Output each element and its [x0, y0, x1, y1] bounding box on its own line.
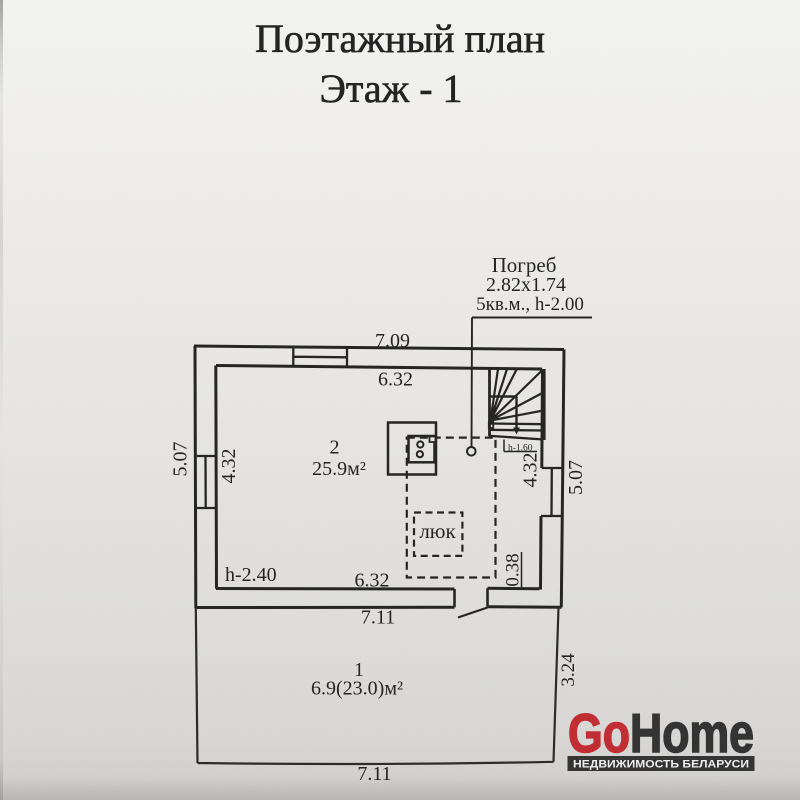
svg-text:2.82x1.74: 2.82x1.74 [486, 274, 566, 296]
svg-text:0.38: 0.38 [503, 553, 524, 586]
svg-text:4.32: 4.32 [520, 453, 542, 488]
svg-text:5.07: 5.07 [170, 442, 192, 477]
svg-text:3.24: 3.24 [558, 653, 579, 687]
svg-text:Этаж - 1: Этаж - 1 [319, 66, 462, 111]
svg-text:h-2.40: h-2.40 [225, 564, 277, 586]
svg-text:6.32: 6.32 [355, 570, 390, 592]
svg-text:GoHome: GoHome [568, 702, 754, 764]
svg-text:НЕДВИЖИМОСТЬ БЕЛАРУСИ: НЕДВИЖИМОСТЬ БЕЛАРУСИ [573, 759, 749, 771]
svg-text:Поэтажный план: Поэтажный план [255, 16, 545, 61]
svg-text:7.11: 7.11 [361, 607, 395, 629]
svg-text:25.9м²: 25.9м² [312, 458, 366, 480]
svg-text:5.07: 5.07 [565, 460, 587, 495]
svg-text:7.09: 7.09 [375, 330, 410, 352]
svg-text:6.9(23.0)м²: 6.9(23.0)м² [311, 678, 403, 700]
svg-text:2: 2 [330, 437, 340, 459]
svg-text:5кв.м., h-2.00: 5кв.м., h-2.00 [476, 294, 584, 315]
svg-text:люк: люк [419, 519, 456, 543]
svg-text:h-1.60: h-1.60 [508, 444, 533, 454]
svg-text:7.11: 7.11 [357, 763, 391, 785]
svg-text:6.32: 6.32 [378, 369, 413, 391]
svg-text:4.32: 4.32 [218, 449, 240, 484]
